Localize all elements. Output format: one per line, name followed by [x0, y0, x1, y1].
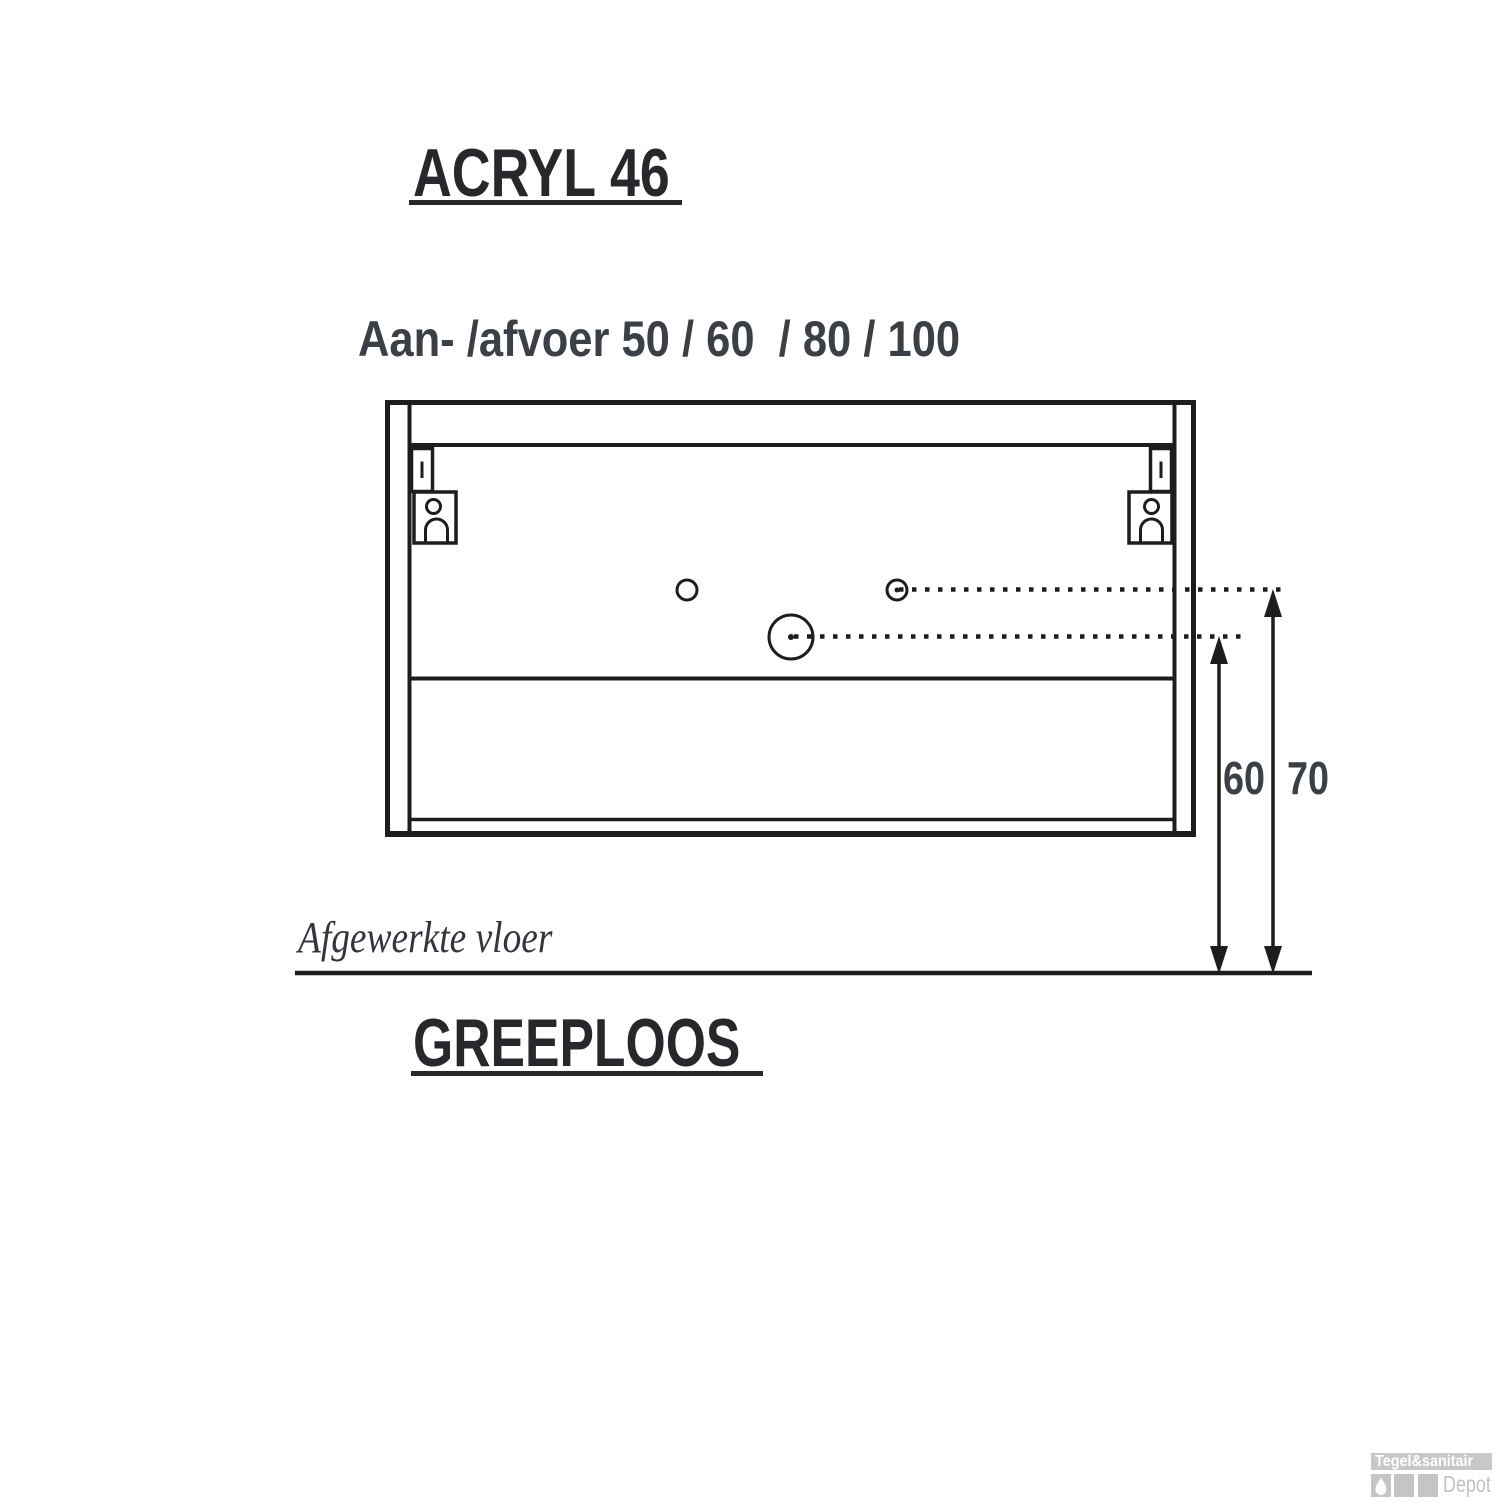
logo-square	[1394, 1474, 1414, 1497]
brand-logo: Tegel&sanitair Depot	[1368, 1453, 1500, 1500]
logo-depot-text: Depot	[1443, 1473, 1491, 1496]
right-bracket-hole	[1145, 500, 1159, 514]
arrow-60-head-bottom	[1210, 946, 1228, 974]
logo-squares: Depot	[1371, 1474, 1500, 1497]
dimension-label-60: 60	[1223, 755, 1265, 801]
footer-underline	[411, 1071, 763, 1076]
small-hole-left	[677, 580, 697, 600]
arrow-60-head-top	[1210, 636, 1228, 664]
dimension-label-70: 70	[1287, 755, 1329, 801]
arrow-70-head-top	[1264, 589, 1282, 617]
dimension-arrow-60	[1210, 636, 1228, 974]
large-drain-hole-center	[788, 634, 794, 640]
cabinet-outline	[385, 400, 1196, 837]
logo-brand-text: Tegel&sanitair	[1375, 1454, 1473, 1470]
floor-label: Afgewerkte vloer	[298, 916, 552, 960]
water-drop-icon	[1371, 1474, 1391, 1497]
left-bracket-hook	[426, 519, 448, 543]
reference-dotted-lines	[794, 590, 1283, 637]
logo-square-drop	[1371, 1474, 1391, 1497]
arrow-70-head-bottom	[1264, 946, 1282, 974]
right-mounting-bracket	[1129, 449, 1172, 544]
left-bracket-hole	[427, 500, 441, 514]
mounting-holes	[677, 580, 907, 659]
small-hole-right-center	[895, 588, 900, 593]
dimension-arrow-70	[1264, 589, 1282, 974]
right-bracket-hook	[1141, 519, 1163, 543]
logo-square	[1418, 1474, 1438, 1497]
left-mounting-bracket	[412, 449, 457, 544]
page: ACRYL 46 Aan- /afvoer 50 / 60 / 80 / 100	[0, 0, 1500, 1500]
logo-brand-bar: Tegel&sanitair	[1371, 1453, 1492, 1470]
technical-drawing	[0, 0, 1500, 1500]
footer-title: GREEPLOOS	[413, 1009, 740, 1077]
